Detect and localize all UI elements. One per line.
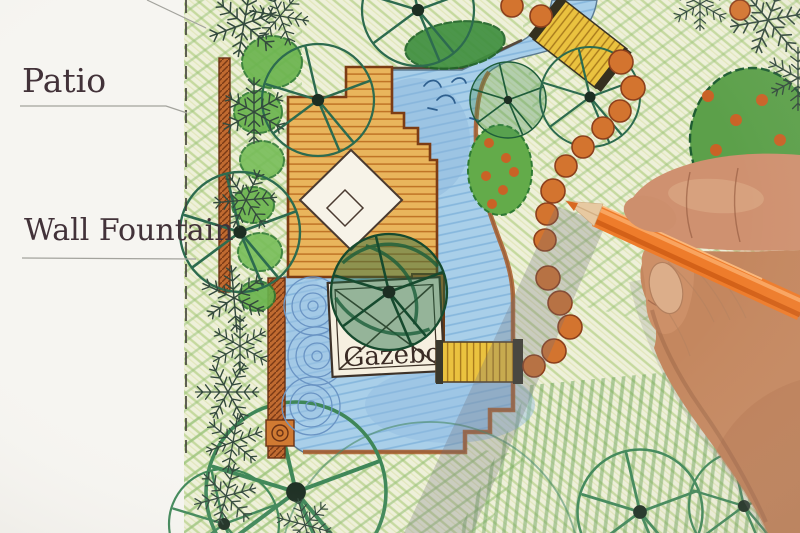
plan-canvas: Gazebo (0, 0, 800, 533)
photo-vignette (0, 0, 800, 533)
landscape-plan-photo: Gazebo (0, 0, 800, 533)
